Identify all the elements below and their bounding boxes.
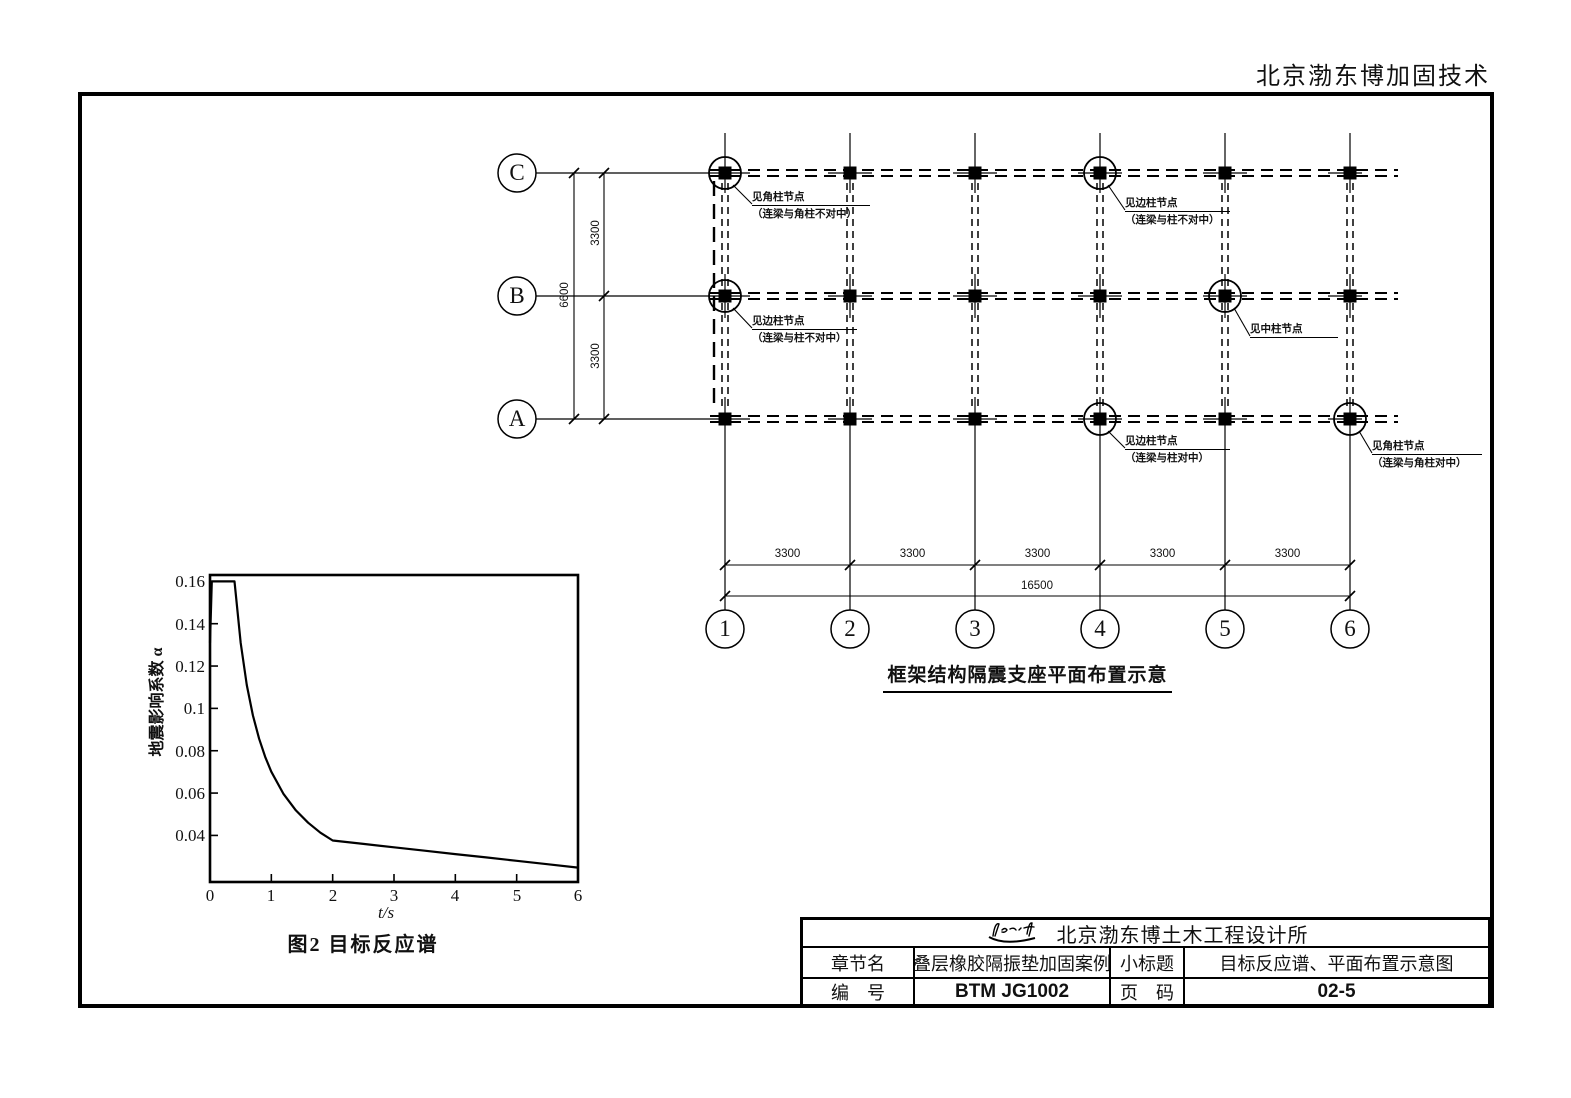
dim-span-1: 3300 [725, 548, 850, 560]
callout-B5: 见中柱节点 [1250, 323, 1338, 338]
chapter-value-cell: 叠层橡胶隔振垫加固案例 [913, 946, 1109, 977]
drawing-sheet: 北京渤东博加固技术 C B A 1 2 3 4 5 6 3300 3300 33… [0, 0, 1571, 1098]
callout-A4: 见边柱节点 （连梁与柱对中） [1125, 435, 1230, 465]
dim-span-2: 3300 [850, 548, 975, 560]
grid-bubble-6: 6 [1330, 609, 1370, 649]
callout-C4: 见边柱节点 （连梁与柱不对中） [1125, 197, 1230, 227]
callout-A6: 见角柱节点 （连梁与角柱对中） [1372, 440, 1482, 470]
xtick-2: 2 [318, 886, 348, 906]
number-label-cell: 编 号 [803, 977, 913, 1005]
dim-span-3: 3300 [975, 548, 1100, 560]
figure-caption: 图2 目标反应谱 [258, 928, 468, 957]
callout-B5-title: 见中柱节点 [1250, 323, 1338, 338]
dim-vspan-2: 3300 [590, 328, 602, 384]
grid-bubble-1: 1 [705, 609, 745, 649]
callout-C1-title: 见角柱节点 [752, 191, 870, 206]
grid-bubble-B: B [497, 276, 537, 316]
callout-C1-note: （连梁与角柱不对中） [752, 208, 870, 221]
company-logo-icon [983, 920, 1045, 946]
dim-span-5: 3300 [1225, 548, 1350, 560]
dim-vspan-1: 3300 [590, 205, 602, 261]
company-name: 北京渤东博土木工程设计所 [1057, 920, 1309, 946]
title-block: 北京渤东博土木工程设计所 章节名 叠层橡胶隔振垫加固案例 小标题 目标反应谱、平… [800, 917, 1491, 1008]
callout-A6-title: 见角柱节点 [1372, 440, 1482, 455]
callout-C4-title: 见边柱节点 [1125, 197, 1230, 212]
plan-title: 框架结构隔震支座平面布置示意 [880, 660, 1175, 693]
xtick-1: 1 [256, 886, 286, 906]
callout-A6-note: （连梁与角柱对中） [1372, 457, 1482, 470]
page-value-cell: 02-5 [1183, 977, 1488, 1005]
callout-B1-title: 见边柱节点 [752, 315, 857, 330]
xtick-5: 5 [502, 886, 532, 906]
grid-bubble-2: 2 [830, 609, 870, 649]
callout-A4-note: （连梁与柱对中） [1125, 452, 1230, 465]
page-label-cell: 页 码 [1109, 977, 1183, 1005]
dim-span-4: 3300 [1100, 548, 1225, 560]
company-row: 北京渤东博土木工程设计所 [803, 920, 1488, 946]
x-axis-label: t/s [378, 903, 394, 923]
ytick-016: 0.16 [150, 572, 205, 592]
grid-bubble-4: 4 [1080, 609, 1120, 649]
callout-B1-note: （连梁与柱不对中） [752, 332, 857, 345]
callout-C4-note: （连梁与柱不对中） [1125, 214, 1230, 227]
callout-C1: 见角柱节点 （连梁与角柱不对中） [752, 191, 870, 221]
subtitle-label-cell: 小标题 [1109, 946, 1183, 977]
plan-title-text: 框架结构隔震支座平面布置示意 [883, 660, 1171, 693]
ytick-004: 0.04 [150, 826, 205, 846]
grid-bubble-A: A [497, 399, 537, 439]
xtick-6: 6 [563, 886, 593, 906]
dim-total-v: 6600 [559, 267, 571, 323]
number-value-cell: BTM JG1002 [913, 977, 1109, 1005]
xtick-0: 0 [195, 886, 225, 906]
xtick-4: 4 [440, 886, 470, 906]
grid-bubble-C: C [497, 153, 537, 193]
callout-A4-title: 见边柱节点 [1125, 435, 1230, 450]
dim-total-h: 16500 [947, 580, 1127, 592]
grid-bubble-3: 3 [955, 609, 995, 649]
subtitle-value-cell: 目标反应谱、平面布置示意图 [1183, 946, 1488, 977]
chapter-label-cell: 章节名 [803, 946, 913, 977]
grid-bubble-5: 5 [1205, 609, 1245, 649]
callout-B1: 见边柱节点 （连梁与柱不对中） [752, 315, 857, 345]
y-axis-label: 地震影响系数 α [143, 592, 167, 812]
